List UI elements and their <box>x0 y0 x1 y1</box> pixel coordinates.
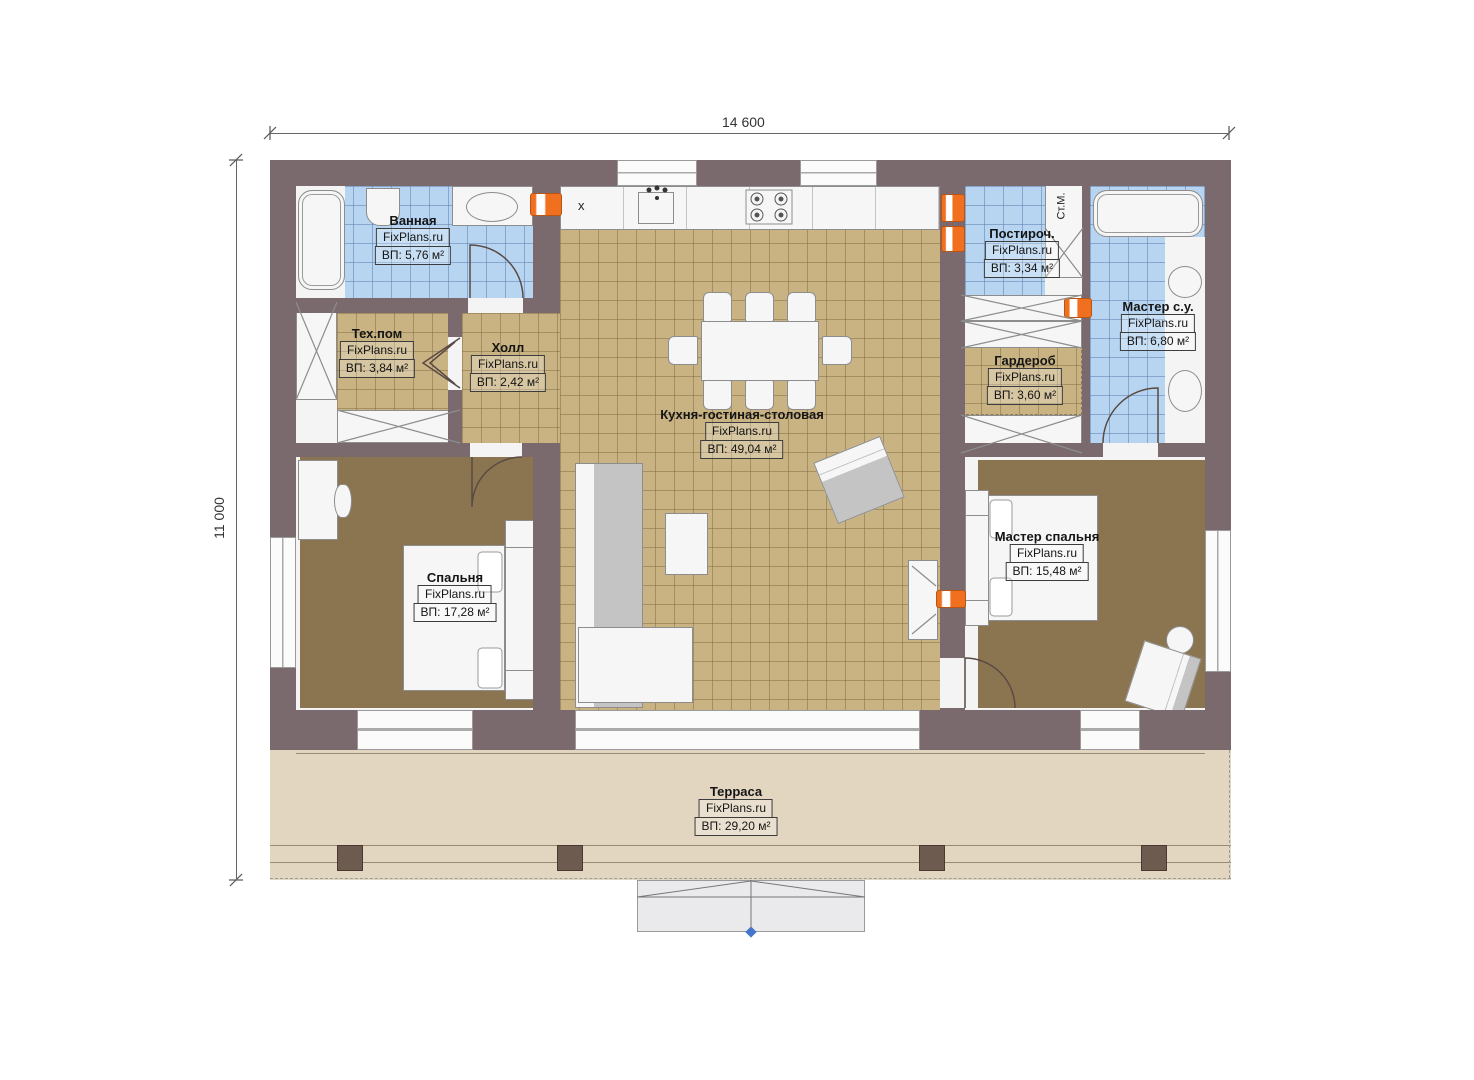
terrace-column <box>1141 845 1167 871</box>
dining-table <box>701 321 819 381</box>
dining-chair <box>787 292 816 322</box>
window-master-bedroom-bottom <box>1080 710 1140 750</box>
watermark: FixPlans.ru <box>340 341 414 360</box>
watermark: FixPlans.ru <box>699 799 773 818</box>
washing-machine-label: Ст.М. <box>1056 192 1068 219</box>
coffee-table <box>665 513 708 575</box>
closet-tech-bottom <box>337 410 460 443</box>
master-bedroom-door-opening <box>940 658 965 708</box>
sofa-chaise <box>578 627 693 703</box>
room-name: Ванная <box>375 213 451 228</box>
window-bedroom-left <box>270 537 296 668</box>
nightstand <box>965 600 989 626</box>
window-master-bedroom-right <box>1205 530 1231 672</box>
room-label-kitchen: Кухня-гостиная-столовая FixPlans.ru ВП: … <box>660 407 824 459</box>
room-name: Терраса <box>695 784 778 799</box>
nightstand <box>965 490 989 516</box>
terrace-dashed-right <box>1229 750 1230 878</box>
dining-chair <box>745 292 774 322</box>
room-name: Спальня <box>414 570 497 585</box>
window-bedroom-bottom <box>357 710 473 750</box>
wall-bedroom-living <box>533 443 560 710</box>
room-area: ВП: 15,48 м² <box>1006 562 1089 581</box>
master-sink <box>1168 370 1202 412</box>
watermark: FixPlans.ru <box>985 241 1059 260</box>
room-label-master-bedroom: Мастер спальня FixPlans.ru ВП: 15,48 м² <box>995 529 1100 581</box>
watermark: FixPlans.ru <box>1121 314 1195 333</box>
dining-chair <box>822 336 852 365</box>
room-label-laundry: Постироч. FixPlans.ru ВП: 3,34 м² <box>984 226 1060 278</box>
wall-top <box>270 160 1231 186</box>
appliance-x-marker: x <box>578 198 585 213</box>
floor-plan-canvas: x <box>0 0 1474 1080</box>
terrace-rail-line-1 <box>270 845 1231 846</box>
watermark: FixPlans.ru <box>988 368 1062 387</box>
room-area: ВП: 49,04 м² <box>701 440 784 459</box>
terrace-column <box>337 845 363 871</box>
room-label-terrace: Терраса FixPlans.ru ВП: 29,20 м² <box>695 784 778 836</box>
window-kitchen-1 <box>617 160 697 186</box>
tv-unit <box>908 560 938 640</box>
master-toilet <box>1168 266 1202 298</box>
room-label-bedroom: Спальня FixPlans.ru ВП: 17,28 м² <box>414 570 497 622</box>
boiler-unit <box>530 193 562 216</box>
room-area: ВП: 3,34 м² <box>984 259 1060 278</box>
heater-unit <box>941 194 965 222</box>
dining-chair <box>668 336 698 365</box>
room-label-master-bath: Мастер с.у. FixPlans.ru ВП: 6,80 м² <box>1120 299 1196 351</box>
closet-tech-left <box>296 302 337 400</box>
entry-steps <box>637 880 865 932</box>
room-name: Холл <box>470 340 546 355</box>
bedroom-door-opening <box>470 443 522 457</box>
room-label-bathroom: Ванная FixPlans.ru ВП: 5,76 м² <box>375 213 451 265</box>
room-name: Гардероб <box>987 353 1063 368</box>
room-name: Кухня-гостиная-столовая <box>660 407 824 422</box>
room-name: Постироч. <box>984 226 1060 241</box>
room-label-wardrobe: Гардероб FixPlans.ru ВП: 3,60 м² <box>987 353 1063 405</box>
kitchen-counter <box>560 186 940 230</box>
heater-unit <box>941 226 965 252</box>
room-label-tech: Тех.пом FixPlans.ru ВП: 3,84 м² <box>339 326 415 378</box>
nightstand <box>505 520 535 548</box>
terrace-column <box>557 845 583 871</box>
heater-unit <box>1064 298 1092 318</box>
watermark: FixPlans.ru <box>705 422 779 441</box>
master-bath-door-opening <box>1103 443 1158 457</box>
room-name: Тех.пом <box>339 326 415 341</box>
watermark: FixPlans.ru <box>376 228 450 247</box>
room-area: ВП: 29,20 м² <box>695 817 778 836</box>
bedroom-desk <box>298 460 338 540</box>
terrace-dashed-edge <box>270 878 1231 879</box>
watermark: FixPlans.ru <box>1010 544 1084 563</box>
terrace-edge-line <box>296 753 1205 754</box>
sliding-door-terrace <box>575 710 920 750</box>
room-name: Мастер с.у. <box>1120 299 1196 314</box>
desk-chair <box>334 484 352 518</box>
bathroom-sink <box>466 192 518 222</box>
room-area: ВП: 3,84 м² <box>339 359 415 378</box>
wall-masterbedroom-top <box>940 443 1205 457</box>
dining-chair <box>787 380 816 410</box>
wall-tech-hall-lower <box>448 390 462 443</box>
room-name: Мастер спальня <box>995 529 1100 544</box>
dimension-height: 11 000 <box>211 497 227 539</box>
room-area: ВП: 6,80 м² <box>1120 332 1196 351</box>
dining-chair <box>703 292 732 322</box>
room-label-hall: Холл FixPlans.ru ВП: 2,42 м² <box>470 340 546 392</box>
room-area: ВП: 2,42 м² <box>470 373 546 392</box>
terrace-rail-line-2 <box>270 862 1231 863</box>
dining-chair <box>703 380 732 410</box>
dimension-line-left <box>236 160 237 880</box>
room-area: ВП: 5,76 м² <box>375 246 451 265</box>
room-area: ВП: 17,28 м² <box>414 603 497 622</box>
watermark: FixPlans.ru <box>418 585 492 604</box>
window-kitchen-2 <box>800 160 877 186</box>
wall-tech-hall-upper <box>448 313 462 337</box>
bathtub <box>298 190 345 290</box>
wall-wardrobe-masterbath <box>1082 186 1090 455</box>
master-bathtub <box>1093 190 1203 237</box>
dining-chair <box>745 380 774 410</box>
dimension-line-top <box>270 133 1229 134</box>
bathroom-door-opening <box>468 298 523 313</box>
watermark: FixPlans.ru <box>471 355 545 374</box>
terrace-column <box>919 845 945 871</box>
closet-laundry-2 <box>961 321 1082 348</box>
heater-unit <box>936 590 966 608</box>
kitchen-sink <box>638 192 674 224</box>
nightstand <box>505 670 535 700</box>
room-area: ВП: 3,60 м² <box>987 386 1063 405</box>
dimension-width: 14 600 <box>722 114 765 130</box>
